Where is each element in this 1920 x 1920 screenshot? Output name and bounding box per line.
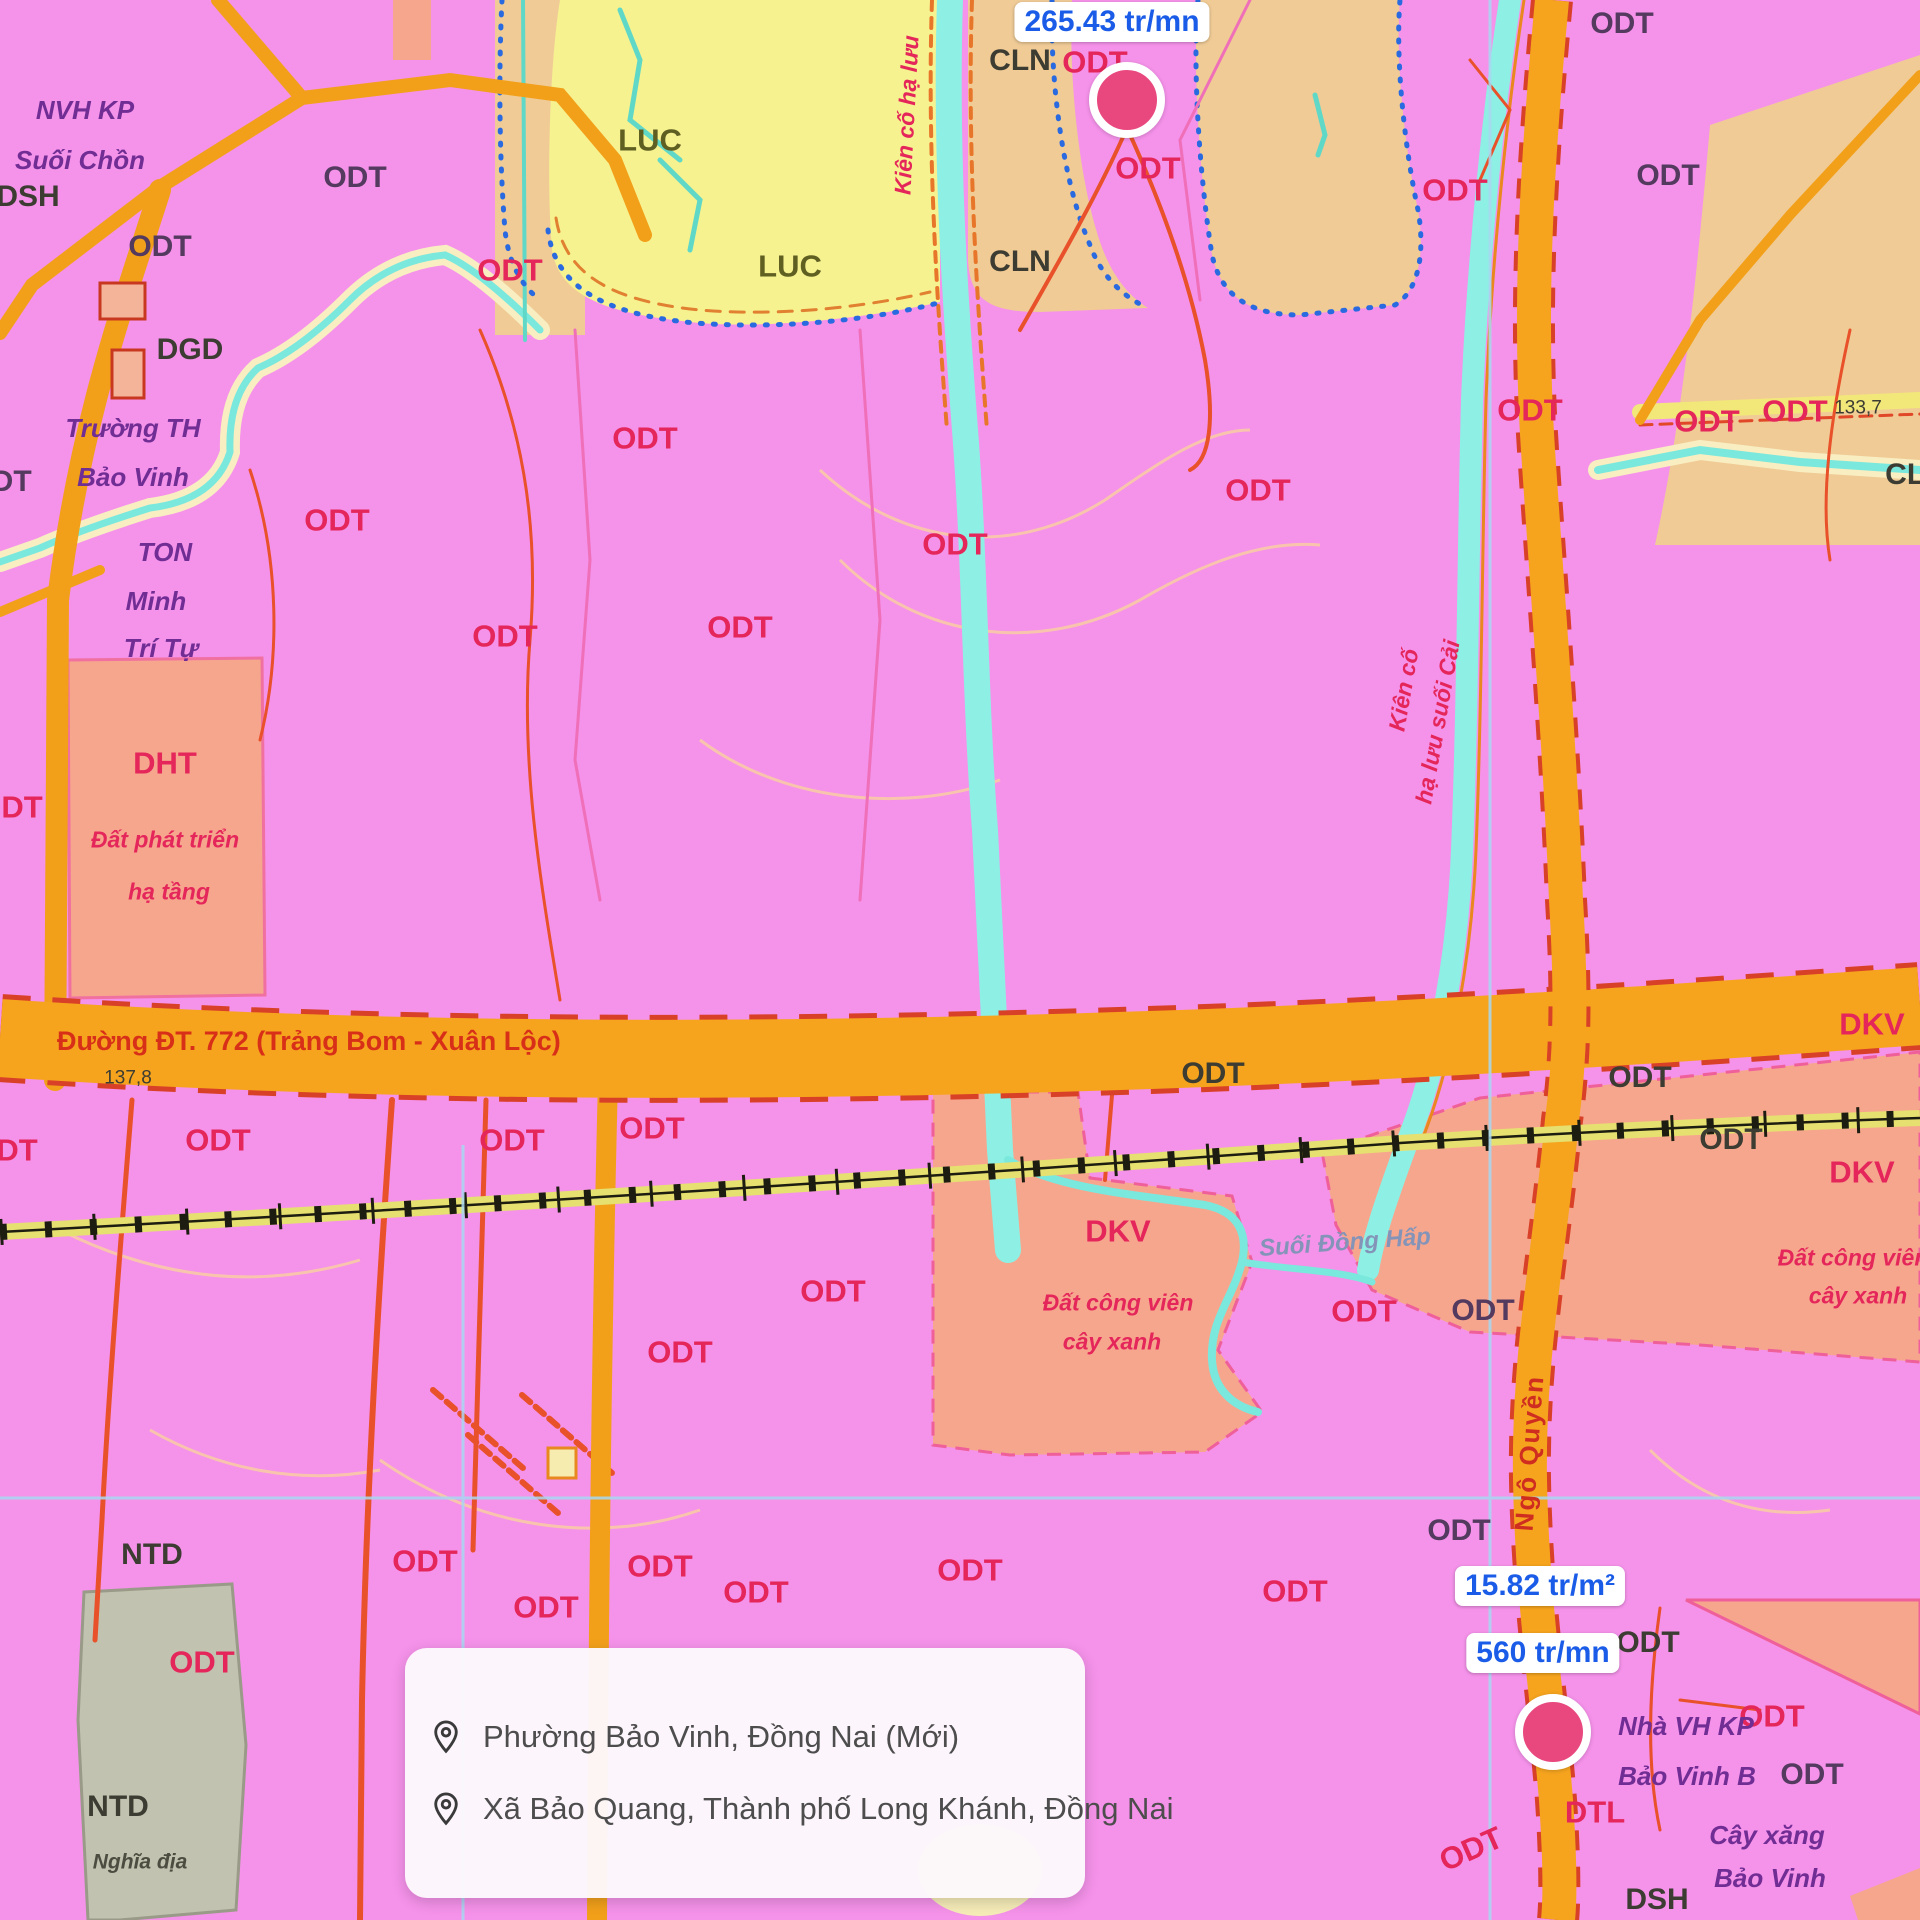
zone-label: ODT <box>185 1125 250 1156</box>
zone-label: ODT <box>619 1113 684 1144</box>
zone-label: DGD <box>157 335 224 365</box>
zone-label: NTD <box>87 1792 149 1822</box>
zone-label: Đất công viên <box>1778 1247 1920 1270</box>
zone-label: ODT <box>0 792 43 823</box>
zone-label: 133,7 <box>1834 399 1882 418</box>
zone-label: ODT <box>1497 395 1562 426</box>
zone-label: ODT <box>1780 1760 1843 1790</box>
zone-label: ODT <box>627 1551 692 1582</box>
zone-label: ODT <box>0 467 32 497</box>
zone-label: CLN <box>1885 460 1920 490</box>
zone-label: ODT <box>477 255 542 286</box>
zone-label: ODT <box>1225 475 1290 506</box>
zone-label: Nghĩa địa <box>93 1852 188 1873</box>
location-row-2[interactable]: Xã Bảo Quang, Thành phố Long Khánh, Đồng… <box>427 1790 1085 1828</box>
zone-label: Trường TH <box>65 415 200 441</box>
zone-label: LUC <box>758 251 822 282</box>
zone-label: Bảo Vinh <box>77 464 189 490</box>
zone-label: hạ tầng <box>128 881 210 904</box>
zone-label: Bảo Vinh <box>1714 1865 1826 1891</box>
location-label-1: Phường Bảo Vinh, Đồng Nai (Mới) <box>483 1719 959 1755</box>
zone-label: ODT <box>1331 1296 1396 1327</box>
road-dt772-label: Đường ĐT. 772 (Trảng Bom - Xuân Lộc) <box>57 1026 561 1057</box>
zone-label: ODT <box>304 505 369 536</box>
zone-label: Suối Đồng Hấp <box>1258 1225 1431 1261</box>
zone-label: NTD <box>121 1540 183 1570</box>
zone-label: Minh <box>126 588 187 614</box>
zone-label: ODT <box>1262 1576 1327 1607</box>
location-pin-icon <box>427 1718 465 1756</box>
zone-label: CLN <box>989 247 1051 277</box>
zone-label: ODT <box>1451 1296 1514 1326</box>
zone-label: Trí Tự <box>124 635 198 661</box>
zone-label: DKV <box>1829 1157 1894 1188</box>
zone-label: DHT <box>133 748 197 779</box>
location-row-1[interactable]: Phường Bảo Vinh, Đồng Nai (Mới) <box>427 1718 1085 1756</box>
zone-label: DTL <box>1565 1797 1625 1828</box>
zone-label: NVH KP <box>36 97 134 123</box>
map-canvas[interactable]: ODTODTODTDSHDGDNVH KPSuối ChồnTrường THB… <box>0 0 1920 1920</box>
zone-label: ODT <box>1616 1628 1679 1658</box>
location-card[interactable]: Phường Bảo Vinh, Đồng Nai (Mới) Xã Bảo Q… <box>405 1648 1085 1898</box>
zone-label: ODT <box>323 163 386 193</box>
zone-label: ODT <box>479 1125 544 1156</box>
zone-label: ODT <box>1115 153 1180 184</box>
zone-label: cây xanh <box>1809 1285 1907 1308</box>
zone-label: Ngô Quyền <box>1511 1374 1548 1532</box>
zone-label: ODT <box>1608 1063 1671 1093</box>
zone-label: CLN <box>989 46 1051 76</box>
zone-label: ODT <box>169 1647 234 1678</box>
zone-label: ODT <box>128 232 191 262</box>
zone-label: DKV <box>1839 1009 1904 1040</box>
price-pill[interactable]: 265.43 tr/mn <box>1014 2 1209 42</box>
zone-label: cây xanh <box>1063 1331 1161 1354</box>
zone-label: Đất phát triển <box>91 829 239 852</box>
zone-label: DSH <box>1625 1885 1688 1915</box>
zone-label: ODT <box>1427 1516 1490 1546</box>
zone-label: Suối Chồn <box>15 147 145 173</box>
zone-label: ODT <box>1699 1125 1762 1155</box>
zone-label: TON <box>138 539 192 565</box>
zone-label: ODT <box>1762 396 1827 427</box>
price-pill[interactable]: 560 tr/mn <box>1466 1633 1619 1673</box>
zone-label: ODT <box>0 1135 38 1166</box>
zone-label: Kiên cố <box>1385 647 1422 733</box>
zone-label: Nhà VH KP <box>1618 1713 1754 1739</box>
zone-label: ODT <box>937 1555 1002 1586</box>
zone-label: DSH <box>0 182 60 212</box>
map-marker[interactable] <box>1515 1694 1591 1770</box>
zone-label: Đất công viên <box>1043 1292 1194 1315</box>
location-label-2: Xã Bảo Quang, Thành phố Long Khánh, Đồng… <box>483 1791 1174 1827</box>
zone-label: DKV <box>1085 1216 1150 1247</box>
zone-label: ODT <box>723 1577 788 1608</box>
zone-label: ODT <box>612 423 677 454</box>
zone-label: ODT <box>800 1276 865 1307</box>
zone-label: ODT <box>707 612 772 643</box>
zone-label: ODT <box>1590 9 1653 39</box>
zone-label: ODT <box>1674 406 1739 437</box>
zone-label: ODT <box>392 1546 457 1577</box>
zone-label: 137,8 <box>104 1069 152 1088</box>
zone-label: ODT <box>1422 175 1487 206</box>
location-pin-icon <box>427 1790 465 1828</box>
zone-label: ODT <box>647 1337 712 1368</box>
zone-label: ODT <box>1435 1822 1507 1877</box>
zone-labels-layer: ODTODTODTDSHDGDNVH KPSuối ChồnTrường THB… <box>0 0 1920 1920</box>
zone-label: ODT <box>1181 1059 1244 1089</box>
zone-label: ODT <box>1636 161 1699 191</box>
zone-label: LUC <box>618 125 682 156</box>
zone-label: ODT <box>513 1592 578 1623</box>
zone-label: Bảo Vinh B <box>1618 1763 1756 1789</box>
zone-label: ODT <box>922 529 987 560</box>
map-marker[interactable] <box>1089 62 1165 138</box>
zone-label: Cây xăng <box>1709 1822 1825 1848</box>
zone-label: Kiên cố hạ lưu <box>891 35 922 196</box>
zone-label: ODT <box>472 621 537 652</box>
price-pill[interactable]: 15.82 tr/m² <box>1455 1566 1625 1606</box>
